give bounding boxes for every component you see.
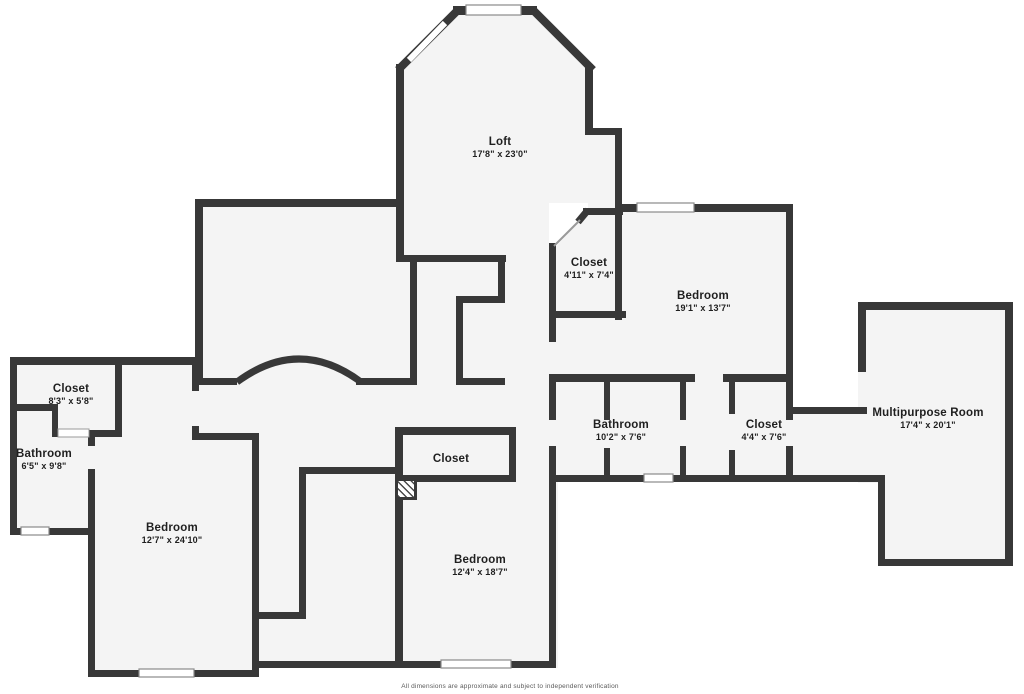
wall (549, 374, 556, 420)
wall (396, 64, 404, 262)
wall (396, 255, 506, 262)
wall (456, 296, 463, 385)
floor-plan: Loft17'8" x 23'0"Closet4'11" x 7'4"Bedro… (0, 0, 1024, 694)
wall (52, 404, 58, 437)
wall (10, 357, 199, 365)
wall (858, 302, 1012, 310)
wall (729, 382, 735, 414)
wall (786, 204, 793, 386)
window (139, 669, 194, 677)
wall (498, 255, 505, 303)
wall (88, 469, 95, 677)
wall (793, 475, 885, 482)
window (644, 474, 673, 482)
floor-area (878, 470, 1012, 565)
wall (549, 482, 556, 668)
wall (786, 382, 793, 420)
wall (723, 374, 793, 382)
wall (252, 612, 306, 619)
wall (786, 446, 793, 482)
wall (410, 258, 417, 385)
wall (356, 378, 417, 385)
wall (858, 302, 866, 372)
wall (1005, 302, 1013, 566)
wall (252, 433, 259, 673)
wall (509, 427, 516, 482)
window (21, 527, 49, 535)
wall (878, 559, 1012, 566)
wall (604, 382, 610, 420)
wall (680, 382, 686, 420)
floor-area (858, 303, 1012, 483)
wall (195, 378, 237, 385)
floor-area (10, 430, 95, 535)
window (637, 203, 694, 212)
wall (192, 433, 259, 440)
wall (10, 404, 58, 411)
wall (299, 470, 306, 619)
wall (10, 357, 17, 535)
wall (456, 296, 505, 303)
wall (456, 378, 505, 385)
floor-plan-drawing (0, 0, 1024, 694)
wall (395, 427, 403, 668)
wall (395, 427, 516, 435)
flue-hatch-icon (395, 478, 417, 500)
wall (680, 446, 686, 482)
wall (793, 407, 867, 414)
wall (549, 311, 626, 318)
wall (615, 128, 622, 208)
wall (604, 448, 610, 482)
wall (299, 467, 398, 474)
wall (615, 208, 622, 320)
wall (115, 357, 122, 437)
disclaimer-text: All dimensions are approximate and subje… (401, 683, 618, 690)
wall (549, 374, 695, 382)
wall (585, 64, 593, 135)
wall (195, 199, 403, 207)
wall (192, 357, 199, 391)
wall (729, 450, 735, 482)
window (441, 660, 511, 668)
wall (252, 661, 405, 668)
window (466, 5, 521, 15)
floor-area (551, 205, 793, 482)
door (58, 429, 89, 437)
wall (878, 475, 885, 566)
wall (549, 243, 556, 342)
